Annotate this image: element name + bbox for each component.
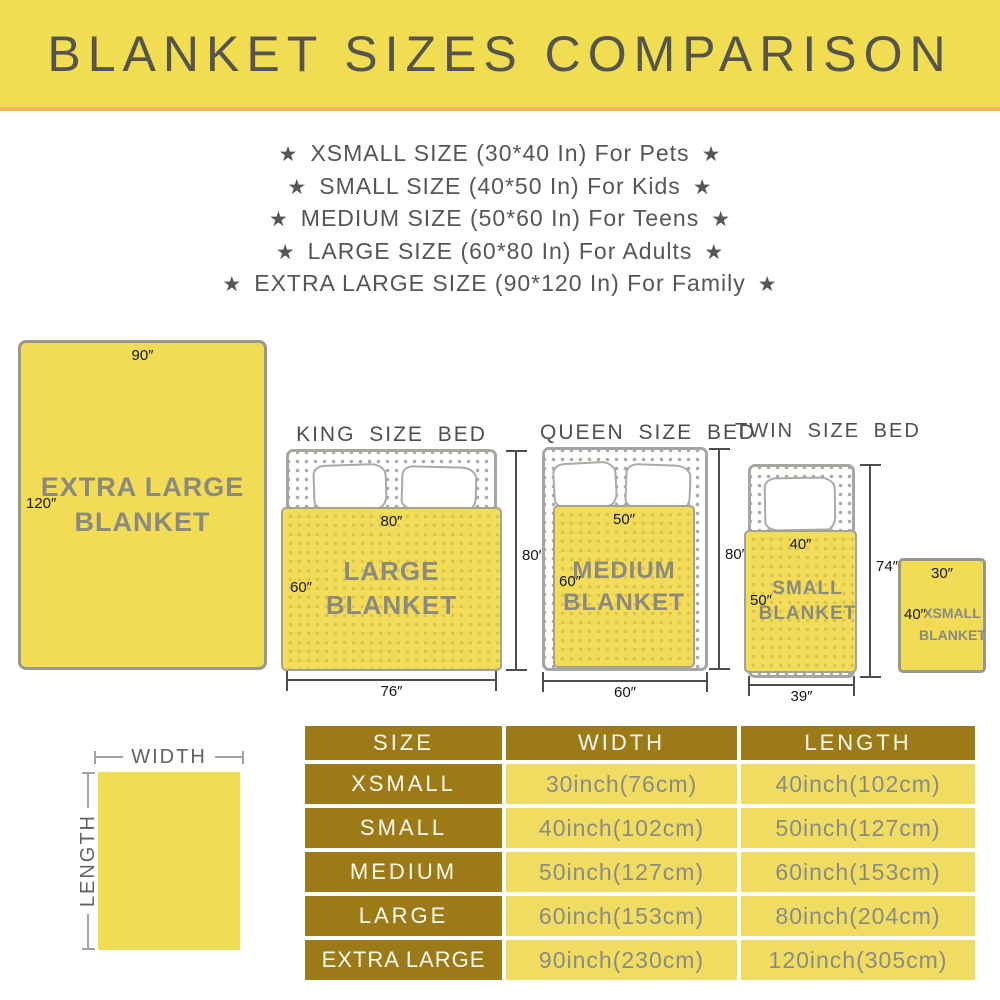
twin-width-dim: 39″ [748,688,855,705]
star-icon: ★ [287,176,307,199]
queen-bed-title: QUEEN SIZE BED [540,421,710,445]
twin-width-dim-line [748,684,855,686]
table-row-label: MEDIUM [305,852,502,892]
star-icon: ★ [693,176,713,199]
king-length-dim-line [515,450,517,671]
dim-line [87,772,89,808]
pillow [400,465,477,512]
list-item-label: XSMALL SIZE (30*40 In) For Pets [310,140,689,166]
table-row-label: EXTRA LARGE [305,940,502,980]
table-header-width: WIDTH [506,726,737,760]
list-item: ★XSMALL SIZE (30*40 In) For Pets★ [0,138,1000,171]
star-icon: ★ [758,273,778,296]
list-item: ★SMALL SIZE (40*50 In) For Kids★ [0,171,1000,204]
dim-line [94,756,123,758]
queen-length-dim-line [718,448,720,670]
table-cell: 90inch(230cm) [506,940,737,980]
table-cell: 50inch(127cm) [506,852,737,892]
medium-blanket-label: MEDIUM BLANKET [555,507,693,666]
pillow [764,476,837,531]
table-cell: 120inch(305cm) [741,940,975,980]
king-length-dim: 80″ [522,547,544,564]
pillow [624,463,692,511]
table-cell: 50inch(127cm) [741,808,975,848]
table-row-label: LARGE [305,896,502,936]
legend-blanket-swatch [98,772,240,950]
medium-blanket: 50″ 60″ MEDIUM BLANKET [553,505,695,668]
star-icon: ★ [269,208,289,231]
list-item: ★LARGE SIZE (60*80 In) For Adults★ [0,236,1000,269]
xsmall-blanket-label: XSMALL BLANKET [919,603,985,646]
queen-width-dim-line [542,680,708,682]
dim-line [87,914,89,950]
size-table: SIZE WIDTH LENGTH XSMALL 30inch(76cm) 40… [305,726,975,980]
table-cell: 30inch(76cm) [506,764,737,804]
small-blanket-label: SMALL BLANKET [746,532,855,671]
list-item-label: MEDIUM SIZE (50*60 In) For Teens [301,205,699,231]
list-item-label: LARGE SIZE (60*80 In) For Adults [308,238,693,264]
xsmall-width-dim: 30″ [901,565,983,582]
table-cell: 80inch(204cm) [741,896,975,936]
table-row-label: SMALL [305,808,502,848]
pillow [552,460,618,509]
pillow [312,463,388,512]
star-icon: ★ [276,241,296,264]
star-icon: ★ [279,143,299,166]
list-item-label: EXTRA LARGE SIZE (90*120 In) For Family [254,270,745,296]
small-blanket: 40″ 50″ SMALL BLANKET [744,530,857,673]
twin-length-dim: 74″ [876,558,898,575]
extra-large-blanket: 90″ 120″ EXTRA LARGE BLANKET [18,340,267,670]
table-header-length: LENGTH [741,726,975,760]
king-bed-title: KING SIZE BED [286,423,497,447]
star-icon: ★ [702,143,722,166]
star-icon: ★ [222,273,242,296]
star-icon: ★ [711,208,731,231]
queen-width-dim: 60″ [542,684,708,701]
king-width-dim: 76″ [286,683,497,700]
table-header-size: SIZE [305,726,502,760]
twin-bed-title: TWIN SIZE BED [735,420,880,443]
list-item: ★MEDIUM SIZE (50*60 In) For Teens★ [0,203,1000,236]
star-icon: ★ [704,241,724,264]
blanket-sizes-infographic: BLANKET SIZES COMPARISON ★XSMALL SIZE (3… [0,0,1000,1000]
legend-length-label: LENGTH [77,814,100,907]
large-blanket-label: LARGE BLANKET [283,509,500,669]
xsmall-blanket: 30″ 40″ XSMALL BLANKET [898,558,986,673]
legend-width-label: WIDTH [131,746,207,769]
table-cell: 40inch(102cm) [506,808,737,848]
large-blanket: 80″ 60″ LARGE BLANKET [281,507,502,671]
legend-width-dim-line: WIDTH [94,747,244,767]
legend-length-dim-line: LENGTH [76,772,100,950]
table-row-label: XSMALL [305,764,502,804]
header-banner: BLANKET SIZES COMPARISON [0,0,1000,111]
king-width-dim-line [286,679,497,681]
table-cell: 40inch(102cm) [741,764,975,804]
twin-length-dim-line [869,464,871,678]
page-title: BLANKET SIZES COMPARISON [47,25,952,83]
list-item: ★EXTRA LARGE SIZE (90*120 In) For Family… [0,268,1000,301]
list-item-label: SMALL SIZE (40*50 In) For Kids [319,173,681,199]
table-cell: 60inch(153cm) [506,896,737,936]
table-cell: 60inch(153cm) [741,852,975,892]
dim-line [215,756,244,758]
size-summary-list: ★XSMALL SIZE (30*40 In) For Pets★ ★SMALL… [0,138,1000,301]
extra-large-blanket-label: EXTRA LARGE BLANKET [21,343,264,667]
